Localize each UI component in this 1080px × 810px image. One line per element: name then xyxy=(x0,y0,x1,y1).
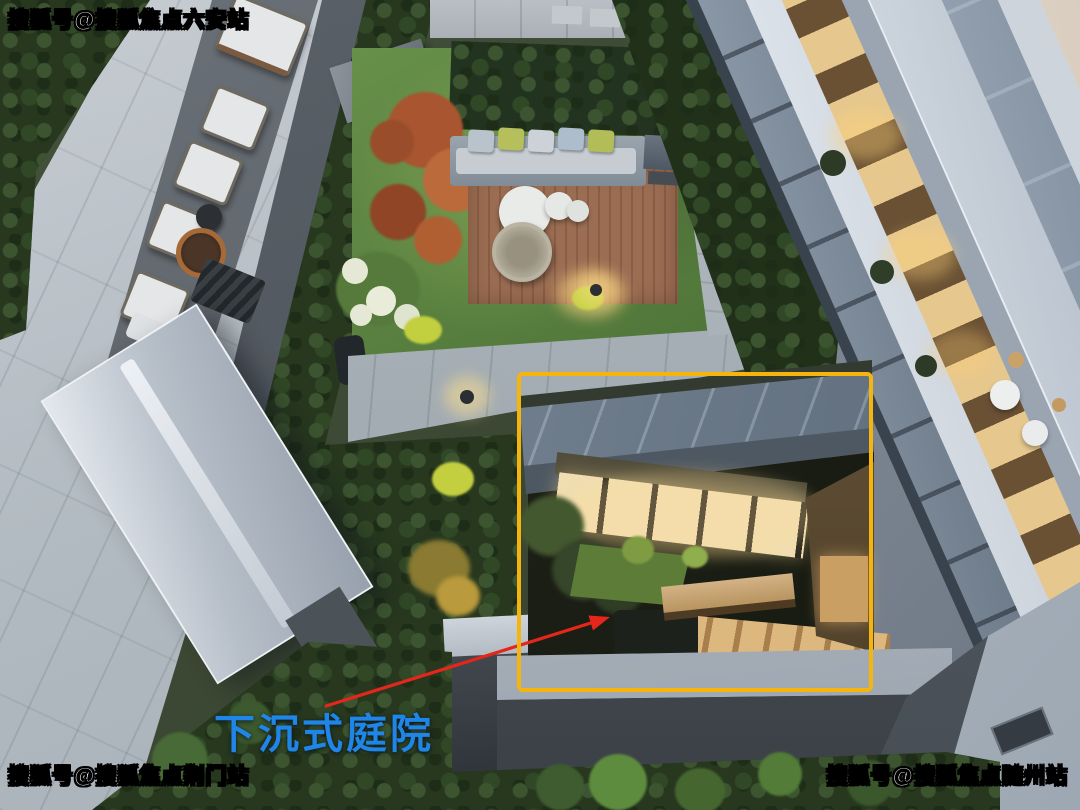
watermark-bottom-left: 搜狐号@搜狐焦点荆门站 xyxy=(8,764,249,789)
watermark-top-left: 搜狐号@搜狐焦点六安站 xyxy=(8,8,249,33)
label-sunken-courtyard: 下沉式庭院 xyxy=(214,712,434,757)
aerial-courtyard-photo: 下沉式庭院 搜狐号@搜狐焦点六安站 搜狐号@搜狐焦点荆门站 搜狐号@搜狐焦点随州… xyxy=(0,0,1080,810)
watermark-bottom-right: 搜狐号@搜狐焦点随州站 xyxy=(827,764,1068,789)
highlight-box-annotation xyxy=(517,372,873,692)
